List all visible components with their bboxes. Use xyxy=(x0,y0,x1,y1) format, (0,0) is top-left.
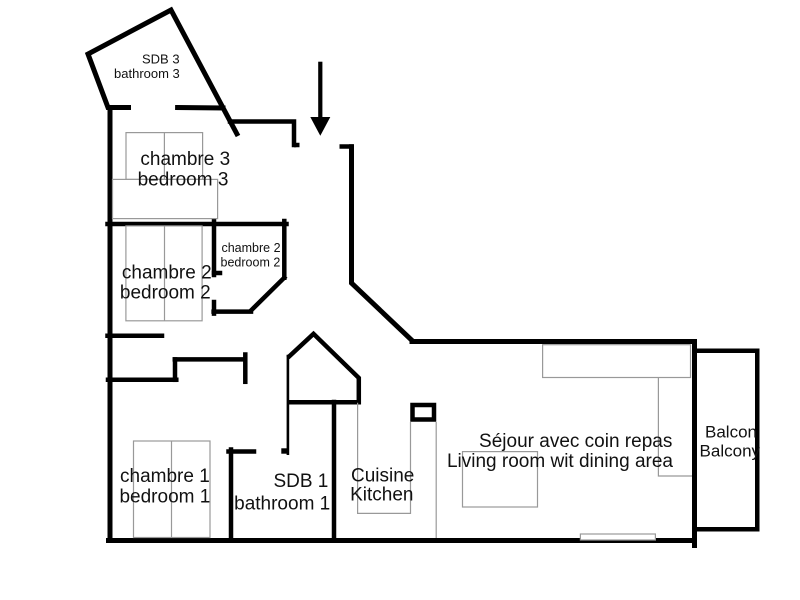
svg-text:chambre 2: chambre 2 xyxy=(122,262,212,283)
svg-text:chambre 1: chambre 1 xyxy=(120,466,210,487)
svg-text:Séjour avec coin repas: Séjour avec coin repas xyxy=(479,431,672,452)
svg-text:bedroom 2: bedroom 2 xyxy=(221,255,281,269)
svg-text:SDB 3: SDB 3 xyxy=(142,52,180,67)
svg-text:SDB 1: SDB 1 xyxy=(273,471,328,492)
svg-text:chambre 3: chambre 3 xyxy=(140,149,230,170)
svg-text:Cuisine: Cuisine xyxy=(351,466,414,487)
svg-text:Balcony: Balcony xyxy=(700,442,761,461)
svg-text:bathroom 1: bathroom 1 xyxy=(234,493,330,514)
svg-text:Balcon: Balcon xyxy=(705,422,757,441)
svg-text:chambre 2: chambre 2 xyxy=(221,241,280,255)
svg-text:bedroom 3: bedroom 3 xyxy=(138,170,229,191)
svg-text:bedroom 2: bedroom 2 xyxy=(120,283,211,304)
svg-text:bathroom 3: bathroom 3 xyxy=(114,66,180,81)
svg-text:Living room wit dining area: Living room wit dining area xyxy=(447,451,673,472)
svg-text:Kitchen: Kitchen xyxy=(350,485,413,506)
svg-text:bedroom 1: bedroom 1 xyxy=(119,487,210,508)
